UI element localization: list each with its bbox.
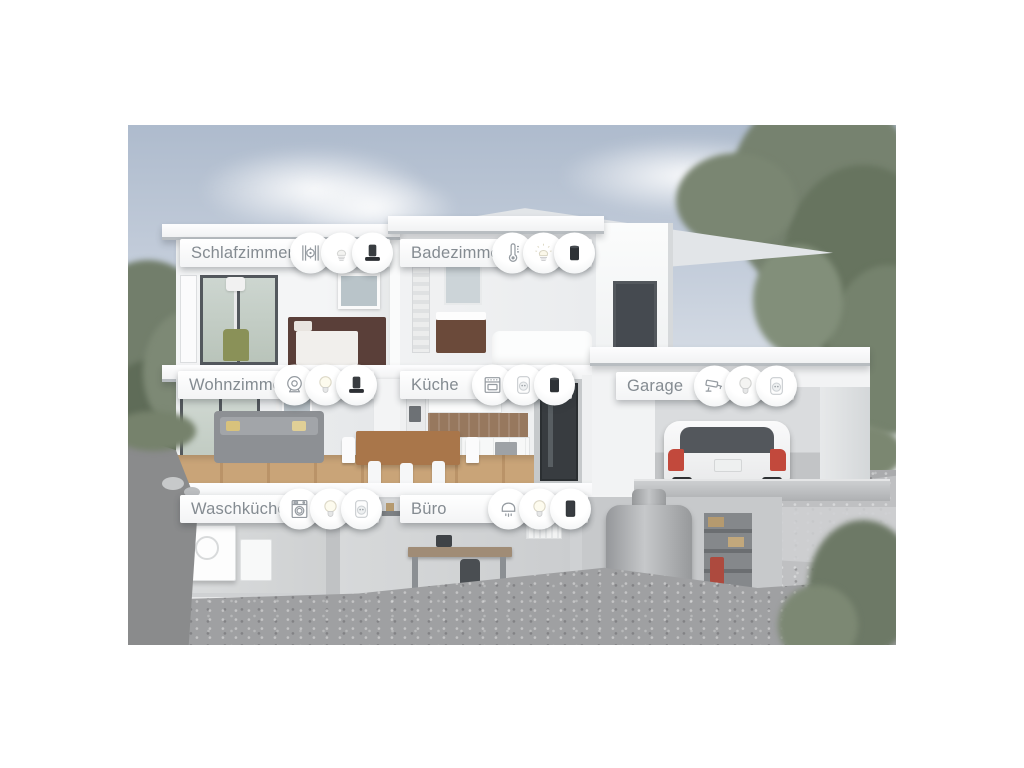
license-plate: [714, 459, 742, 472]
shelf-books: [386, 503, 394, 511]
dining-chair: [342, 437, 355, 463]
sofa: [214, 411, 324, 463]
stone: [162, 477, 184, 490]
pillow: [226, 421, 240, 431]
device-badges: [289, 489, 382, 530]
storage-shelf: [704, 513, 752, 593]
smart-speaker-icon: [550, 489, 591, 530]
device-badges: [704, 366, 797, 407]
smart-plug-icon: [756, 366, 797, 407]
dining-chair: [432, 461, 445, 485]
smart-speaker-cylinder-icon: [534, 365, 575, 406]
pillow: [294, 321, 312, 331]
desk-leg: [412, 557, 418, 589]
floor-lamp-shade: [226, 277, 245, 291]
device-badges: [502, 233, 595, 274]
car-taillight: [770, 449, 786, 471]
smart-plug-icon: [341, 489, 382, 530]
garage-roof-slab: [590, 347, 870, 366]
room-name: Waschküche: [191, 500, 287, 519]
wall-picture: [338, 273, 380, 309]
device-badges: [498, 489, 591, 530]
heat-pump-fan: [195, 536, 219, 560]
bathtub: [492, 331, 592, 367]
radiator: [180, 275, 197, 363]
dining-table: [356, 431, 460, 465]
towel-radiator: [412, 263, 430, 353]
mirror: [444, 263, 482, 305]
dining-chair: [466, 437, 479, 463]
car-taillight: [668, 449, 684, 471]
bed: [288, 317, 386, 367]
room-name: Garage: [627, 377, 683, 396]
device-badges: [284, 365, 377, 406]
built-in-oven: [409, 406, 421, 422]
device-badges: [482, 365, 575, 406]
monitor: [436, 535, 452, 547]
facade-window: [613, 281, 657, 351]
room-name: Büro: [411, 500, 447, 519]
storage-box: [708, 517, 724, 527]
room-name: Schlafzimmer: [191, 244, 293, 263]
smart-speaker-icon: [352, 233, 393, 274]
bed-blanket: [296, 331, 358, 365]
pillow: [292, 421, 306, 431]
storage-box: [728, 537, 744, 547]
sink: [436, 312, 486, 320]
roof-slab-mid: [388, 216, 604, 234]
dining-chair: [368, 461, 381, 485]
smart-speaker-icon: [336, 365, 377, 406]
tree: [753, 245, 843, 355]
desk-top: [408, 547, 512, 557]
chair: [223, 329, 249, 361]
washer: [240, 539, 272, 581]
smart-home-illustration: Schlafzimmer Badezimmer: [128, 125, 896, 645]
device-badges: [300, 233, 393, 274]
smart-speaker-cylinder-icon: [554, 233, 595, 274]
room-name: Küche: [411, 376, 459, 395]
car-rear-window: [680, 427, 774, 453]
vanity: [436, 319, 486, 353]
